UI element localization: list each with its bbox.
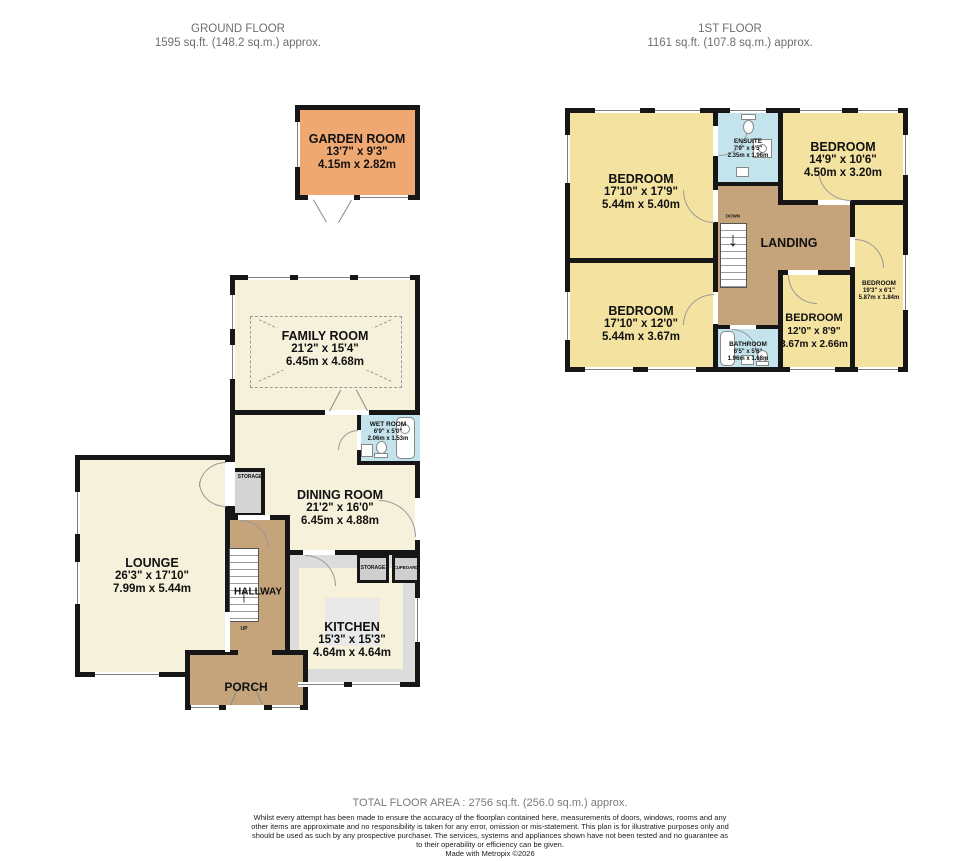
up-label: UP — [241, 626, 248, 632]
room-name: ENSUITE — [728, 138, 769, 146]
room-label-cupboard: CUPBOARD — [394, 565, 419, 571]
door-opening — [308, 195, 354, 200]
room-dim-imperial: 12'0" x 8'9" — [780, 325, 848, 338]
footer: TOTAL FLOOR AREA : 2756 sq.ft. (256.0 sq… — [250, 797, 730, 858]
hall-porch-opening — [238, 650, 272, 655]
room-dim-imperial: 17'10" x 17'9" — [602, 186, 680, 199]
room-name: FAMILY ROOM — [282, 329, 369, 343]
window — [858, 108, 898, 113]
room-dim-imperial: 21'2" x 16'0" — [297, 502, 383, 515]
room-name: BEDROOM — [859, 280, 900, 288]
room-dim-imperial: 19'3" x 6'1" — [859, 288, 900, 295]
room-label-bedroom-bottom-left: BEDROOM 17'10" x 12'0" 5.44m x 3.67m — [602, 304, 680, 344]
room-label-bedroom-top-left: BEDROOM 17'10" x 17'9" 5.44m x 5.40m — [602, 172, 680, 212]
room-dim-imperial: 6'5" x 5'6" — [728, 349, 769, 356]
room-label-kitchen: KITCHEN 15'3" x 15'3" 4.64m x 4.64m — [313, 620, 391, 660]
up-arrow-icon: ↑ — [239, 586, 249, 606]
room-name: BEDROOM — [780, 311, 848, 325]
window — [655, 108, 700, 113]
room-label-bedroom-bottom-mid: BEDROOM 12'0" x 8'9" 3.67m x 2.66m — [780, 311, 848, 351]
door-opening — [713, 126, 718, 156]
room-name: DINING ROOM — [297, 488, 383, 502]
door-opening — [225, 612, 230, 652]
floorplan-canvas: GROUND FLOOR 1595 sq.ft. (148.2 sq.m.) a… — [0, 0, 980, 861]
window — [298, 275, 350, 280]
room-dim-imperial: 13'7" x 9'3" — [309, 146, 406, 159]
toilet — [743, 120, 754, 134]
room-name: WET ROOM — [368, 421, 409, 429]
room-label-landing: LANDING — [761, 236, 818, 250]
window — [565, 292, 570, 340]
room-name: STORAGE — [238, 474, 263, 480]
room-dim-imperial: 7'9" x 6'5" — [728, 146, 769, 153]
ground-floor-title: GROUND FLOOR — [88, 22, 388, 36]
toilet-cistern — [374, 453, 388, 458]
window — [358, 275, 410, 280]
room-label-porch: PORCH — [224, 680, 267, 694]
window — [191, 705, 219, 710]
door-leaf — [338, 200, 352, 223]
window — [903, 135, 908, 175]
room-dim-metric: 6.45m x 4.88m — [297, 515, 383, 528]
room-dim-imperial: 17'10" x 12'0" — [602, 318, 680, 331]
window — [75, 492, 80, 534]
window — [360, 195, 408, 200]
window — [648, 367, 696, 372]
window — [272, 705, 300, 710]
window — [230, 345, 235, 379]
credit-text: Made with Metropix ©2026 — [250, 849, 730, 858]
room-dim-imperial: 21'2" x 15'4" — [282, 343, 369, 356]
room-label-dining: DINING ROOM 21'2" x 16'0" 6.45m x 4.88m — [297, 488, 383, 528]
window — [800, 108, 842, 113]
down-label: DOWN — [726, 214, 740, 219]
door-leaf — [313, 200, 327, 223]
room-dim-metric: 3.67m x 2.66m — [780, 338, 848, 351]
room-dim-metric: 1.96m x 1.68m — [728, 356, 769, 363]
room-dim-imperial: 6'9" x 5'0" — [368, 429, 409, 436]
room-name: LANDING — [761, 236, 818, 250]
first-floor-title: 1ST FLOOR — [580, 22, 880, 36]
window — [790, 367, 835, 372]
room-label-bathroom: BATHROOM 6'5" x 5'6" 1.96m x 1.68m — [728, 341, 769, 363]
window — [858, 367, 898, 372]
window — [298, 682, 344, 687]
window — [95, 672, 159, 677]
window — [295, 122, 300, 167]
room-label-ensuite: ENSUITE 7'9" x 6'5" 2.35m x 1.96m — [728, 138, 769, 160]
room-name: BEDROOM — [804, 140, 882, 154]
room-name: BATHROOM — [728, 341, 769, 349]
ground-floor-area: 1595 sq.ft. (148.2 sq.m.) approx. — [88, 36, 388, 50]
sink — [361, 444, 373, 457]
window — [585, 367, 633, 372]
window — [248, 275, 290, 280]
disclaimer-text: Whilst every attempt has been made to en… — [250, 813, 730, 849]
room-name: PORCH — [224, 680, 267, 694]
first-floor-area: 1161 sq.ft. (107.8 sq.m.) approx. — [580, 36, 880, 50]
door-opening — [225, 462, 235, 506]
room-dim-imperial: 14'9" x 10'6" — [804, 154, 882, 167]
window — [415, 598, 420, 642]
window — [903, 255, 908, 310]
window — [595, 108, 640, 113]
room-name: STORAGE — [361, 565, 386, 571]
sink — [736, 167, 749, 177]
room-label-garden: GARDEN ROOM 13'7" x 9'3" 4.15m x 2.82m — [309, 132, 406, 172]
room-dim-metric: 2.06m x 1.53m — [368, 436, 409, 443]
room-name: BEDROOM — [602, 172, 680, 186]
window — [730, 108, 766, 113]
room-label-lounge: LOUNGE 26'3" x 17'10" 7.99m x 5.44m — [113, 556, 191, 596]
window — [352, 682, 400, 687]
door-opening — [818, 200, 850, 205]
first-floor-header: 1ST FLOOR 1161 sq.ft. (107.8 sq.m.) appr… — [580, 22, 880, 50]
room-label-wet-room: WET ROOM 6'9" x 5'0" 2.06m x 1.53m — [368, 421, 409, 443]
room-dim-metric: 5.44m x 5.40m — [602, 199, 680, 212]
room-dim-imperial: 26'3" x 17'10" — [113, 570, 191, 583]
room-name: BEDROOM — [602, 304, 680, 318]
total-floor-area: TOTAL FLOOR AREA : 2756 sq.ft. (256.0 sq… — [250, 797, 730, 809]
room-label-bedroom-right: BEDROOM 19'3" x 6'1" 5.87m x 1.84m — [859, 280, 900, 302]
room-name: LOUNGE — [113, 556, 191, 570]
room-label-family: FAMILY ROOM 21'2" x 15'4" 6.45m x 4.68m — [277, 328, 374, 370]
room-dim-metric: 4.15m x 2.82m — [309, 159, 406, 172]
room-dim-metric: 2.35m x 1.96m — [728, 153, 769, 160]
room-name: CUPBOARD — [394, 565, 419, 571]
door-opening — [226, 705, 264, 710]
room-label-storage-kitchen: STORAGE — [361, 565, 386, 571]
room-name: KITCHEN — [313, 620, 391, 634]
window — [565, 135, 570, 183]
room-dim-metric: 5.44m x 3.67m — [602, 331, 680, 344]
ground-floor-header: GROUND FLOOR 1595 sq.ft. (148.2 sq.m.) a… — [88, 22, 388, 50]
door-opening — [325, 410, 369, 415]
room-dim-metric: 5.87m x 1.84m — [859, 295, 900, 302]
window — [230, 295, 235, 329]
room-dim-metric: 4.50m x 3.20m — [804, 167, 882, 180]
room-label-bedroom-top-right: BEDROOM 14'9" x 10'6" 4.50m x 3.20m — [804, 140, 882, 180]
room-dim-metric: 7.99m x 5.44m — [113, 583, 191, 596]
room-label-storage-dining: STORAGE — [238, 474, 263, 480]
window — [75, 562, 80, 604]
room-dim-metric: 6.45m x 4.68m — [282, 356, 369, 369]
room-dim-imperial: 15'3" x 15'3" — [313, 634, 391, 647]
room-dim-metric: 4.64m x 4.64m — [313, 647, 391, 660]
down-arrow-icon: ↓ — [728, 230, 738, 250]
room-name: GARDEN ROOM — [309, 132, 406, 146]
